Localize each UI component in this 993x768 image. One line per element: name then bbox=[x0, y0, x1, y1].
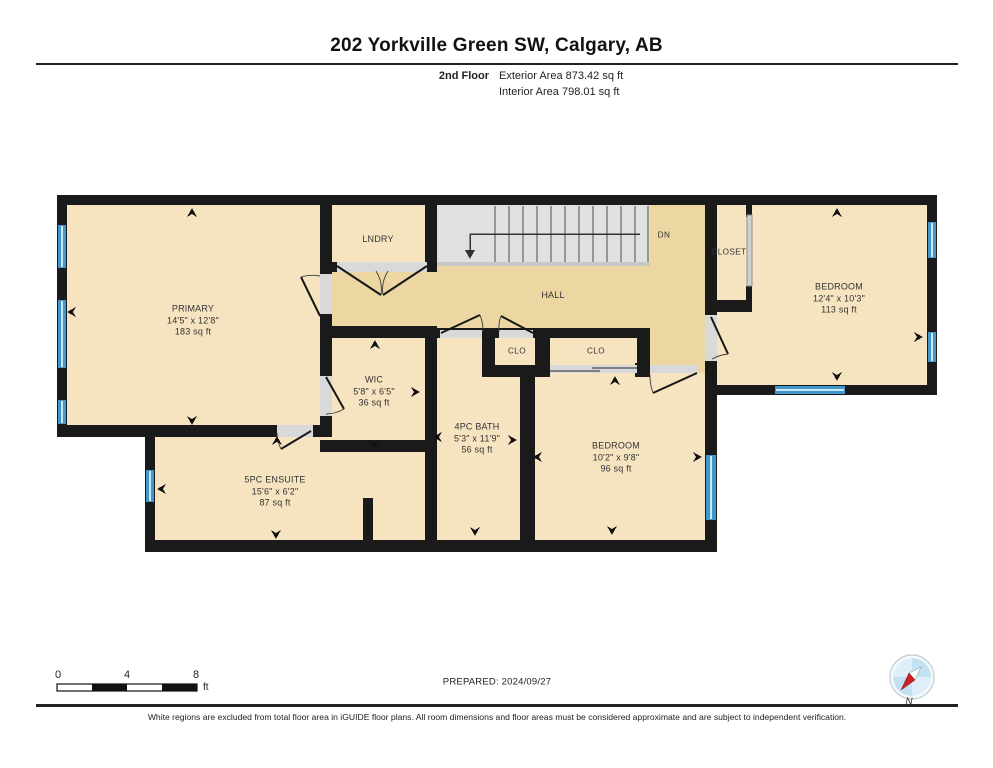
stairs-dn-label: DN bbox=[658, 231, 671, 242]
compass-icon bbox=[890, 655, 934, 699]
window bbox=[58, 300, 66, 368]
scale-unit-label: ft bbox=[203, 682, 209, 693]
room-label-bedroom-s: BEDROOM 10'2" x 9'8" 96 sq ft bbox=[592, 440, 640, 475]
sliding-door bbox=[550, 365, 637, 373]
floor-label: 2nd Floor bbox=[389, 70, 489, 82]
exterior-area: Exterior Area 873.42 sq ft bbox=[499, 70, 623, 82]
room-label-primary: PRIMARY 14'5" x 12'8" 183 sq ft bbox=[167, 303, 219, 338]
room-label-clo-small: CLO bbox=[508, 347, 526, 358]
window bbox=[146, 470, 154, 502]
scale-tick-8: 8 bbox=[193, 669, 199, 681]
prepared-date: PREPARED: 2024/09/27 bbox=[443, 677, 551, 688]
scale-tick-0: 0 bbox=[55, 669, 61, 681]
room-label-bedroom-ne: BEDROOM 12'4" x 10'3" 113 sq ft bbox=[813, 281, 865, 316]
scale-tick-4: 4 bbox=[124, 669, 130, 681]
room-label-ensuite: 5PC ENSUITE 15'6" x 6'2" 87 sq ft bbox=[244, 474, 305, 509]
floorplan-page: 202 Yorkville Green SW, Calgary, AB 2nd … bbox=[0, 0, 993, 768]
room-label-lndry: LNDRY bbox=[362, 234, 393, 246]
scale-bar-graphic bbox=[57, 684, 197, 691]
room-label-hall: HALL bbox=[541, 290, 564, 302]
window bbox=[58, 225, 66, 268]
room-label-bath: 4PC BATH 5'3" x 11'9" 56 sq ft bbox=[454, 421, 500, 456]
room-label-clo-large: CLO bbox=[587, 347, 605, 358]
window bbox=[58, 400, 66, 424]
footer-divider bbox=[36, 704, 958, 707]
window bbox=[775, 386, 845, 394]
room-label-wic: WIC 5'8" x 6'5" 36 sq ft bbox=[353, 374, 395, 409]
closet-bifold-door bbox=[747, 215, 752, 286]
window bbox=[928, 332, 936, 362]
page-title: 202 Yorkville Green SW, Calgary, AB bbox=[330, 35, 663, 57]
interior-area: Interior Area 798.01 sq ft bbox=[499, 86, 619, 98]
header-divider bbox=[36, 63, 958, 65]
disclaimer-text: White regions are excluded from total fl… bbox=[148, 712, 846, 722]
stairs bbox=[437, 205, 650, 266]
floor-plan-drawing bbox=[0, 0, 993, 768]
room-label-closet: CLOSET bbox=[711, 248, 746, 259]
window bbox=[928, 222, 936, 258]
window bbox=[706, 455, 716, 520]
